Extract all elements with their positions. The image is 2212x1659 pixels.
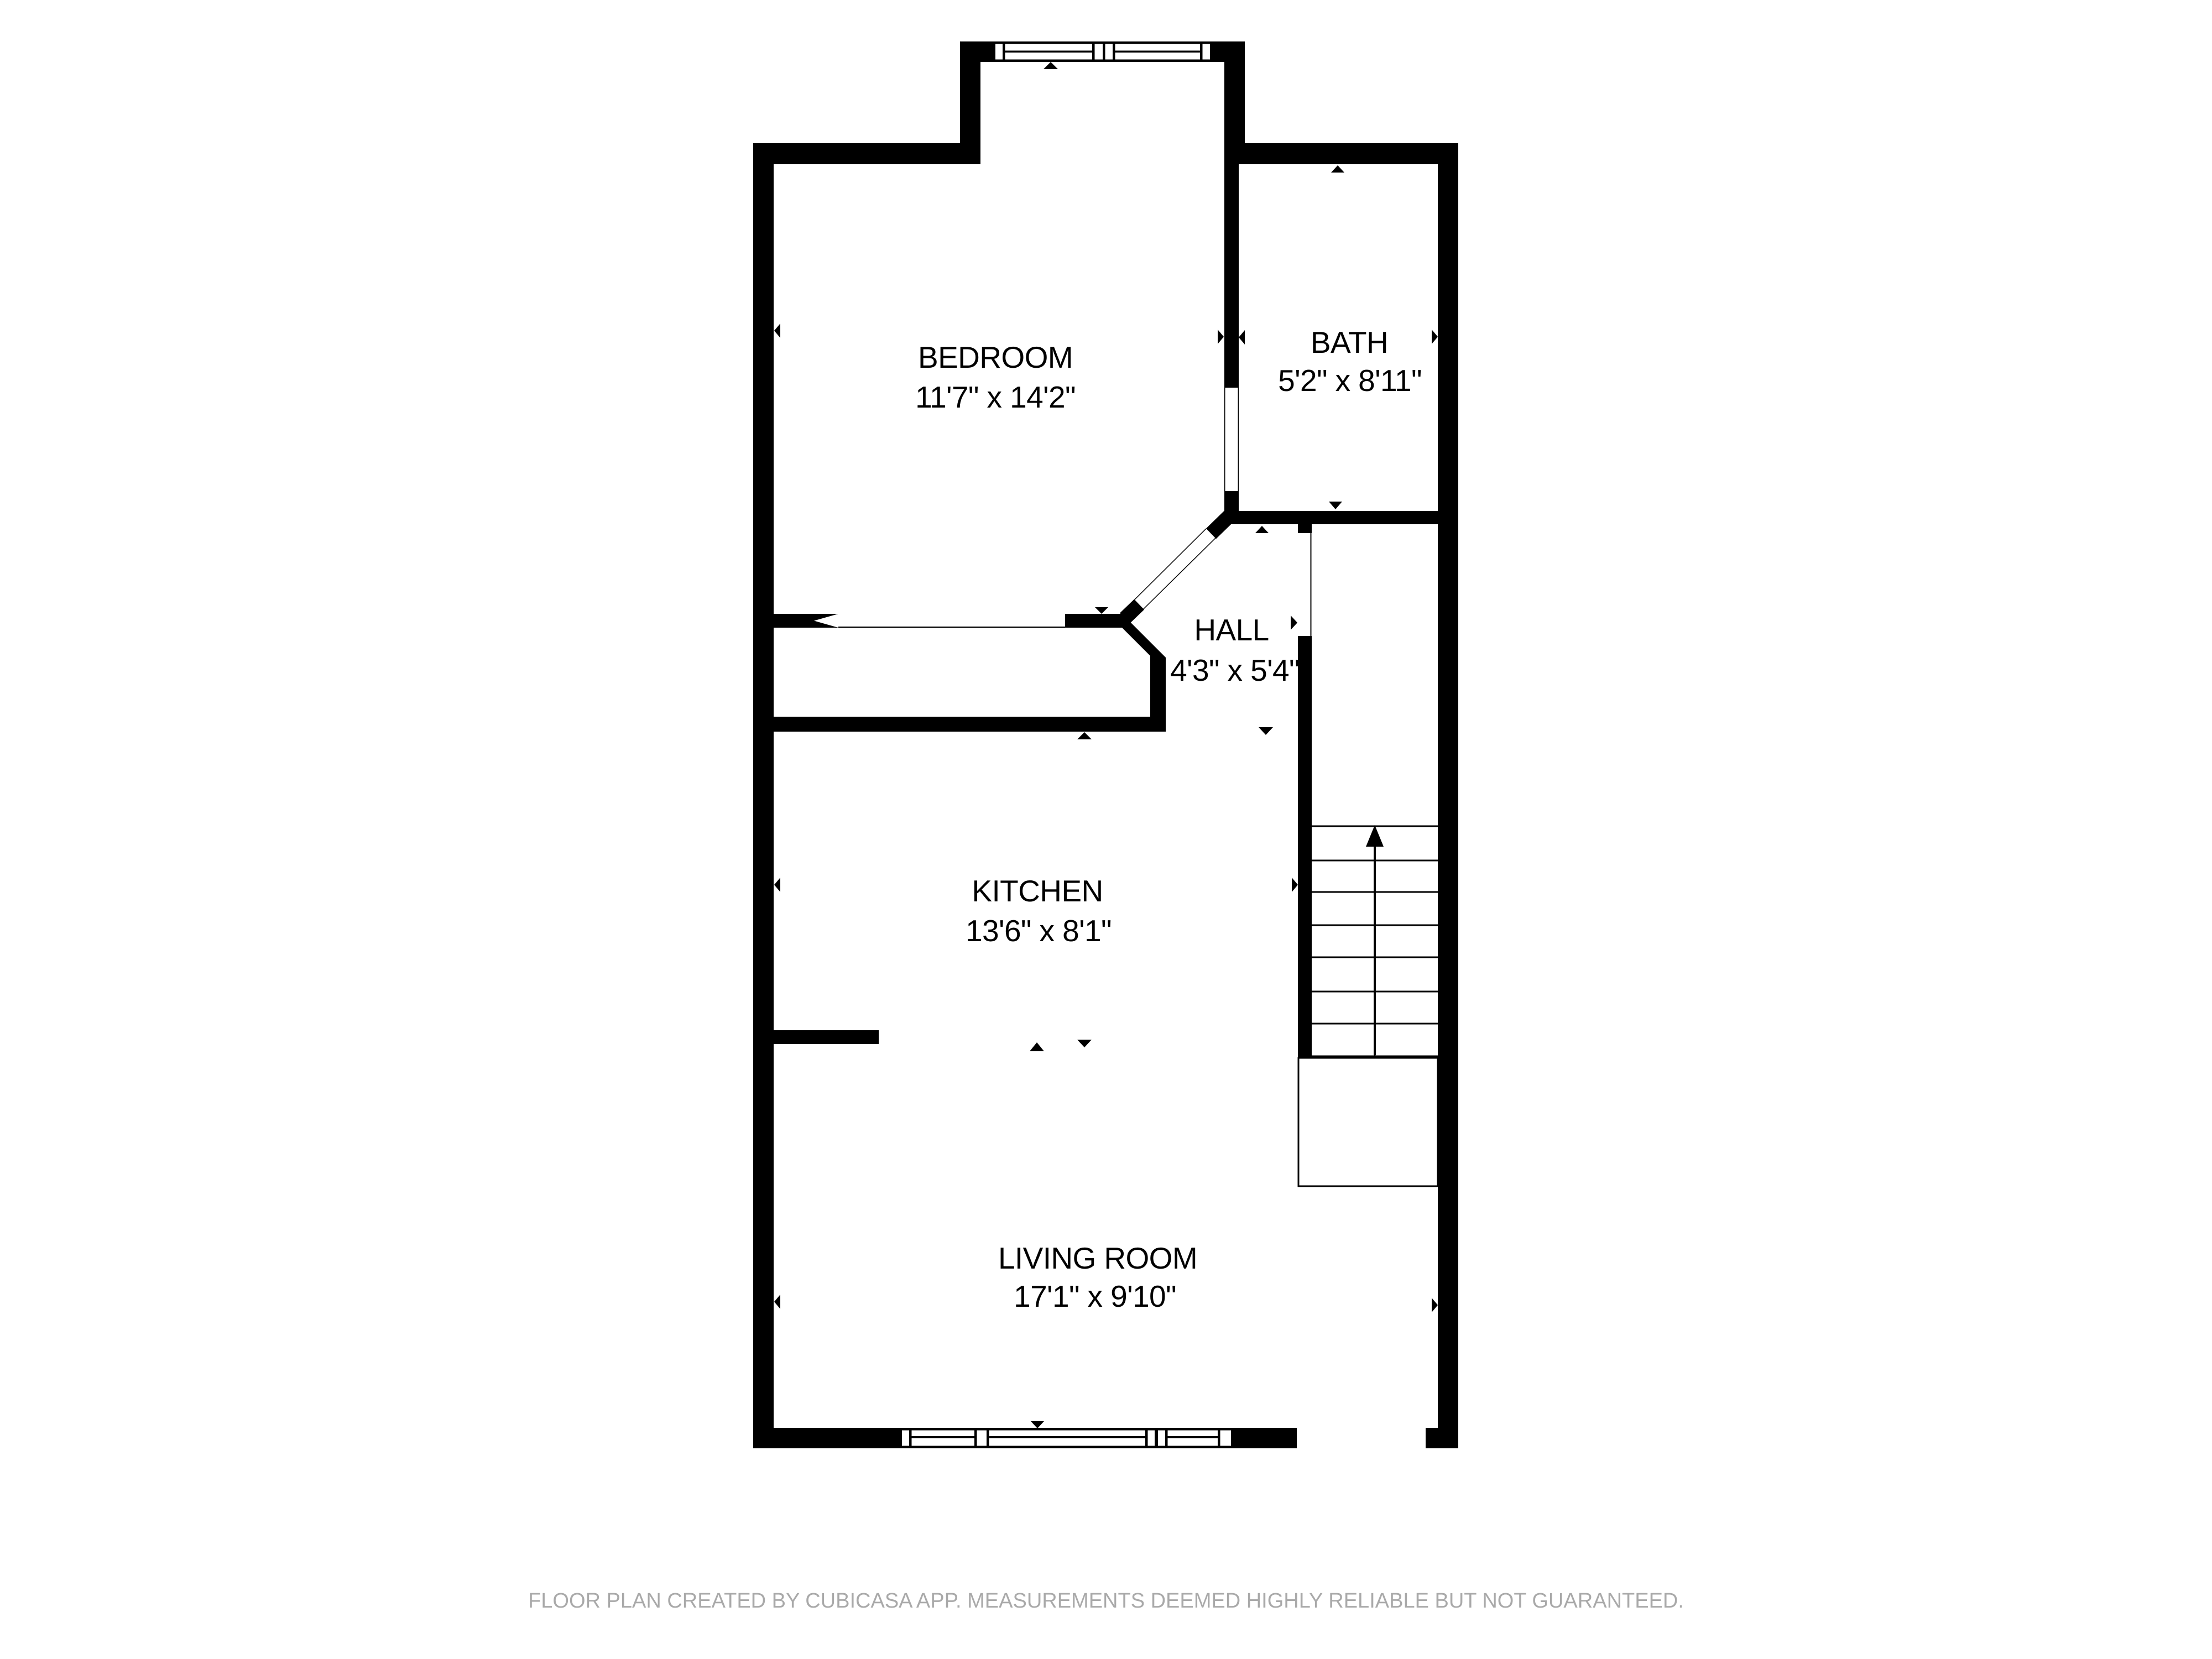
svg-text:FLOOR PLAN CREATED BY CUBICASA: FLOOR PLAN CREATED BY CUBICASA APP. MEAS… — [528, 1589, 1684, 1613]
svg-text:BATH: BATH — [1311, 325, 1388, 359]
svg-text:4'3" x 5'4": 4'3" x 5'4" — [1170, 653, 1300, 687]
svg-text:LIVING ROOM: LIVING ROOM — [998, 1241, 1197, 1275]
svg-text:HALL: HALL — [1194, 613, 1269, 647]
svg-text:5'2" x 8'11": 5'2" x 8'11" — [1278, 363, 1422, 398]
svg-text:BEDROOM: BEDROOM — [918, 340, 1073, 374]
svg-text:KITCHEN: KITCHEN — [972, 874, 1103, 908]
svg-text:13'6" x 8'1": 13'6" x 8'1" — [966, 914, 1112, 948]
svg-text:11'7" x 14'2": 11'7" x 14'2" — [915, 380, 1076, 414]
svg-text:17'1" x 9'10": 17'1" x 9'10" — [1014, 1279, 1176, 1313]
